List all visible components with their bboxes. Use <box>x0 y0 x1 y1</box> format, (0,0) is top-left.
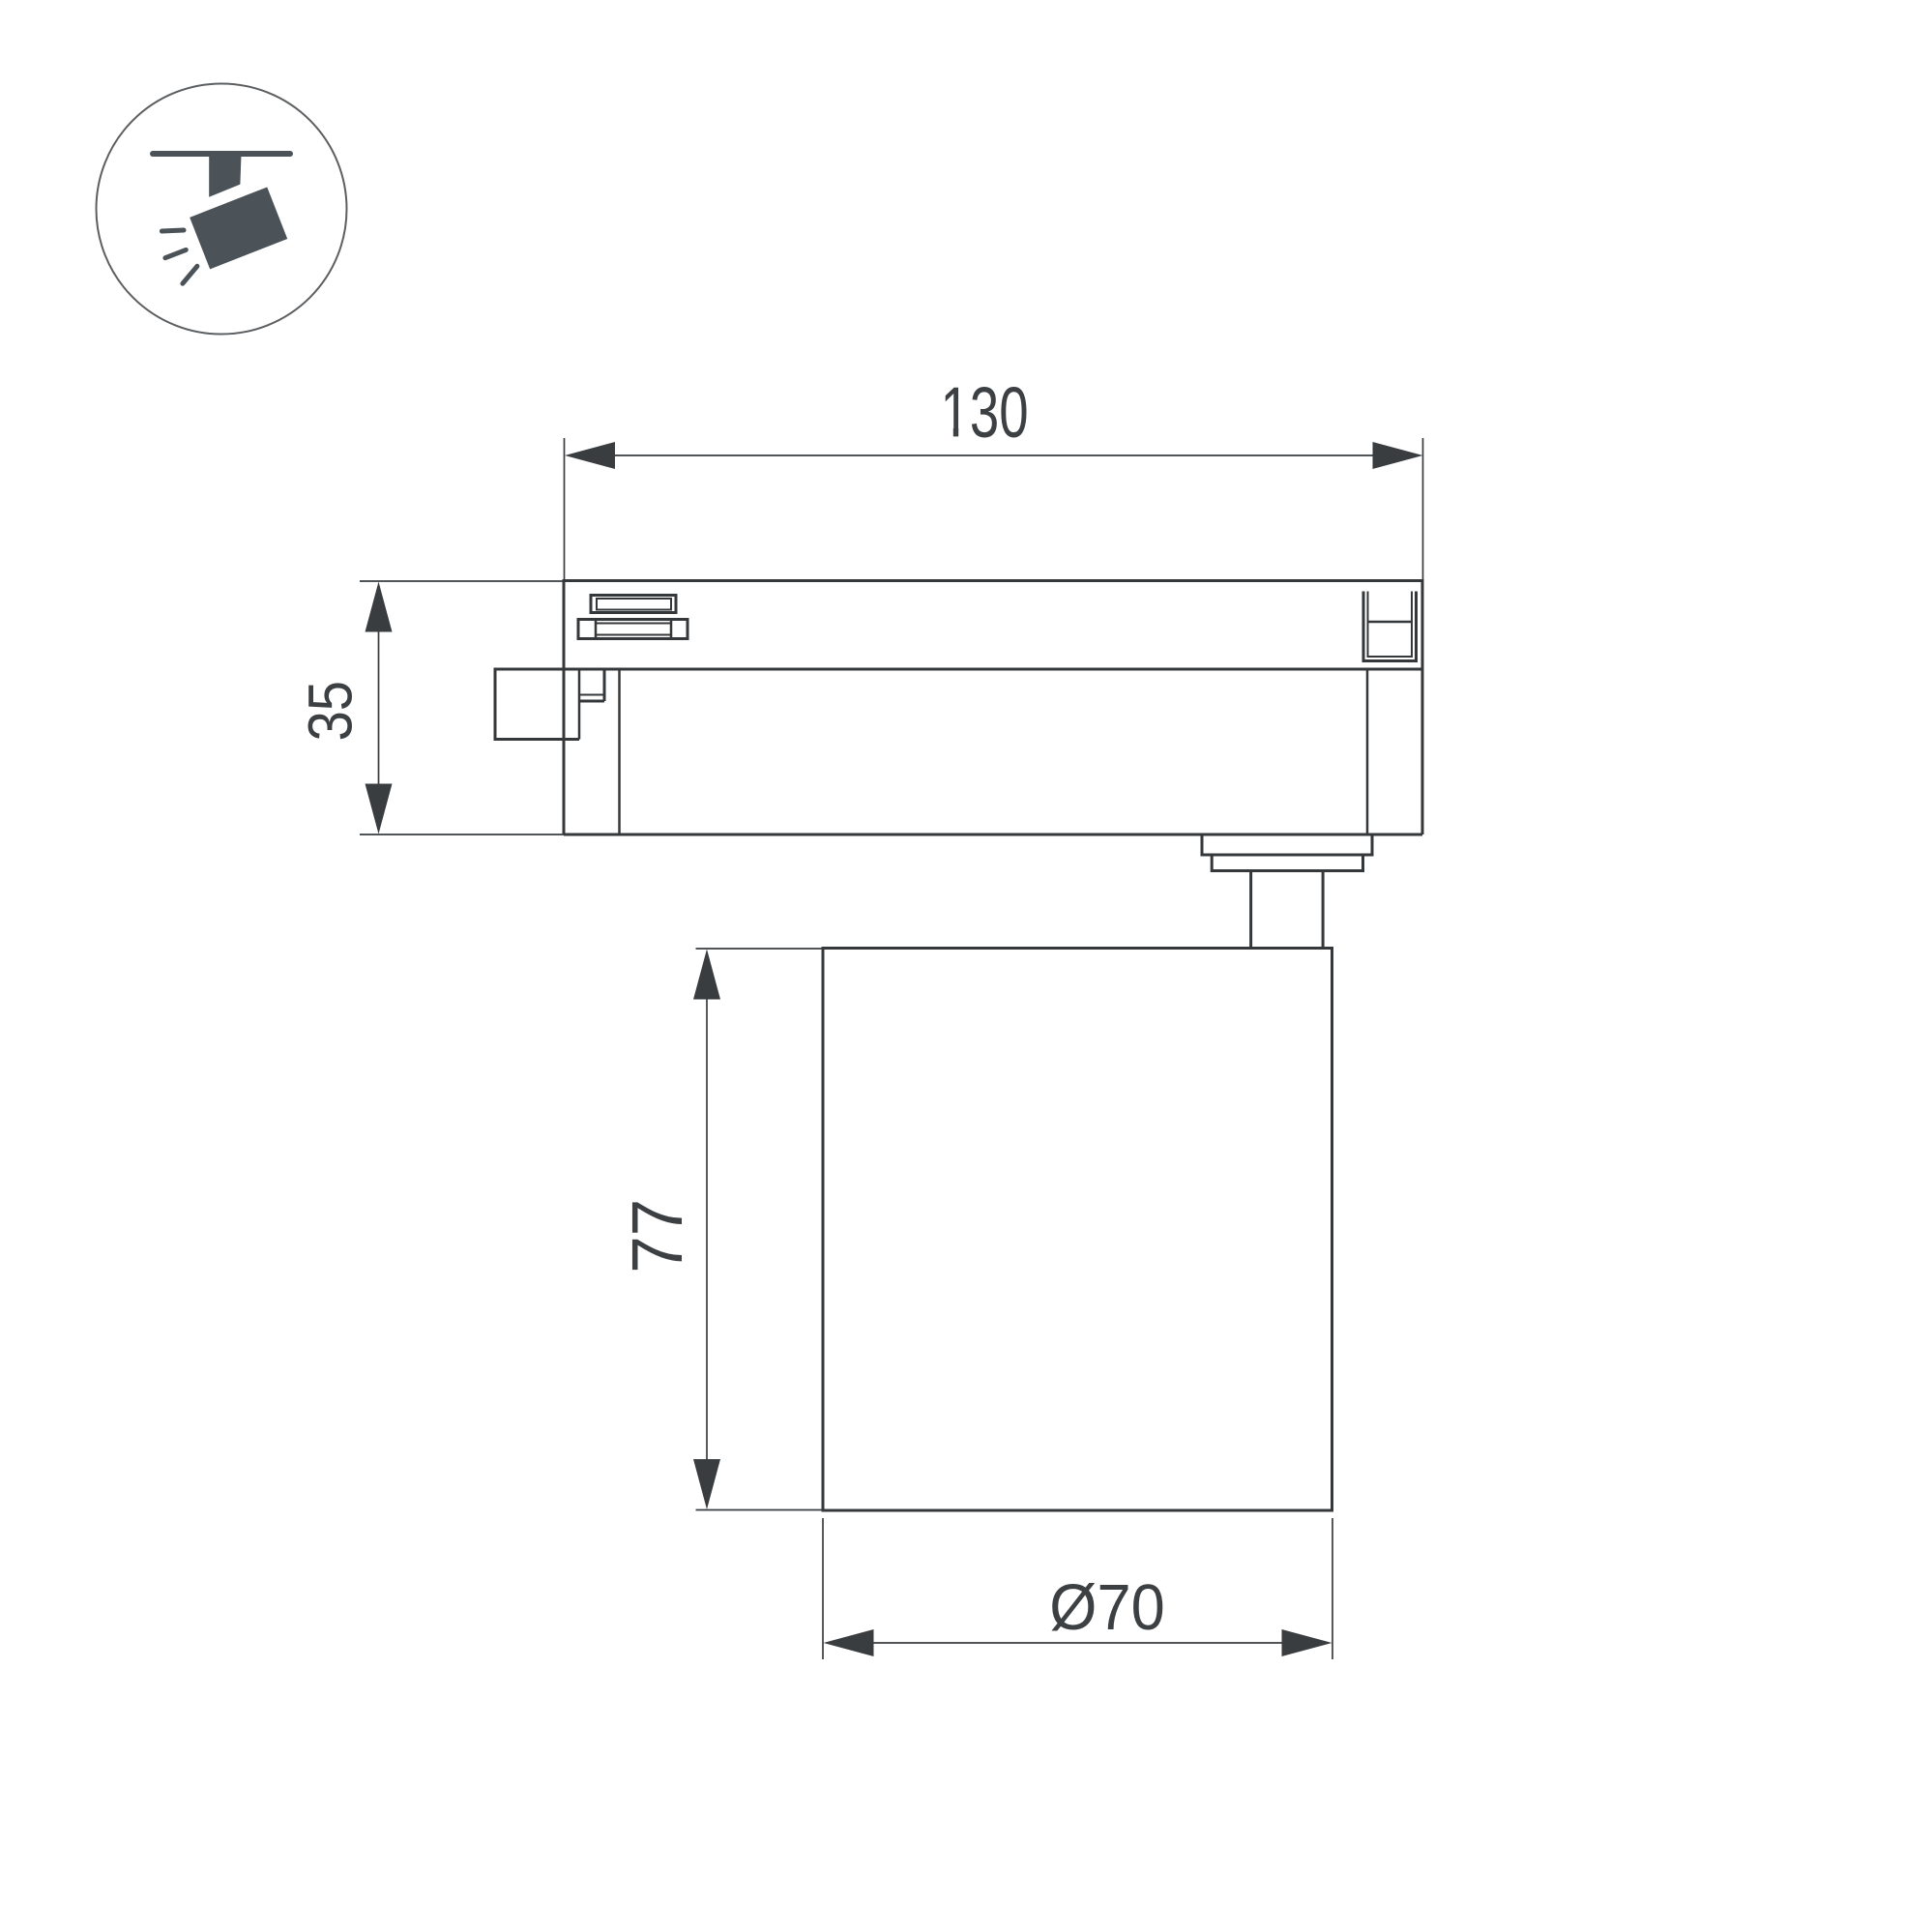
svg-text:77: 77 <box>617 1199 697 1273</box>
svg-text:130: 130 <box>940 372 1028 453</box>
svg-text:Ø70: Ø70 <box>1049 1571 1164 1644</box>
svg-text:35: 35 <box>295 681 365 741</box>
